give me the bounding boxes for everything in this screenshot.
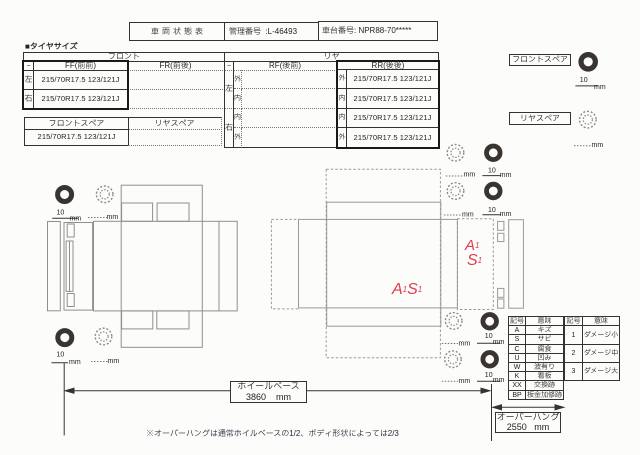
svg-text:10: 10 (57, 210, 65, 217)
svg-text:10: 10 (580, 77, 588, 84)
svg-text:mm: mm (500, 172, 512, 179)
svg-text:mm: mm (462, 212, 474, 219)
svg-text:mm: mm (493, 339, 505, 346)
svg-text:mm: mm (493, 377, 505, 384)
svg-text:mm: mm (594, 84, 606, 91)
svg-text:10: 10 (57, 352, 65, 359)
svg-text:mm: mm (108, 358, 120, 365)
svg-text:mm: mm (459, 340, 471, 347)
svg-text:10: 10 (488, 207, 496, 214)
svg-text:mm: mm (500, 211, 512, 218)
svg-text:mm: mm (69, 359, 81, 366)
svg-text:10: 10 (485, 372, 493, 379)
svg-text:mm: mm (70, 215, 82, 222)
svg-text:mm: mm (459, 378, 471, 385)
svg-text:mm: mm (107, 214, 119, 221)
svg-text:mm: mm (464, 172, 476, 179)
svg-text:mm: mm (592, 142, 604, 149)
svg-text:10: 10 (488, 168, 496, 175)
svg-text:10: 10 (485, 333, 493, 340)
